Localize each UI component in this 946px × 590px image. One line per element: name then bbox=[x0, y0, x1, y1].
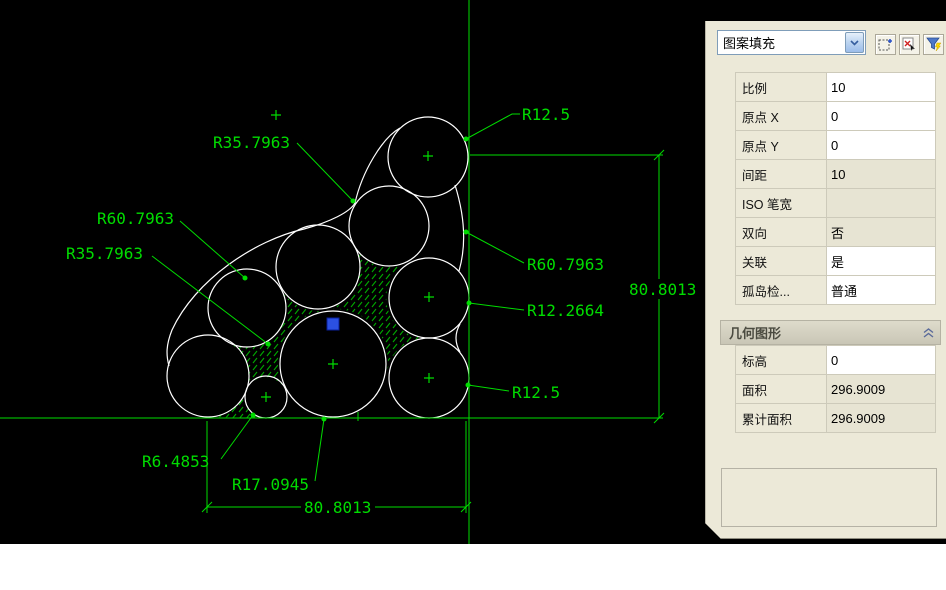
prop-value[interactable] bbox=[827, 189, 935, 217]
prop-value[interactable]: 0 bbox=[827, 346, 935, 374]
prop-label: 原点 X bbox=[736, 102, 827, 130]
prop-row: 累计面积 296.9009 bbox=[736, 404, 935, 433]
selection-grip[interactable] bbox=[327, 318, 339, 330]
geometry-section-header[interactable]: 几何图形 bbox=[720, 320, 941, 345]
prop-value[interactable]: 0 bbox=[827, 102, 935, 130]
prop-row: 间距 10 bbox=[736, 160, 935, 189]
bottom-background bbox=[0, 544, 946, 590]
circle[interactable] bbox=[276, 225, 360, 309]
prop-label: 标高 bbox=[736, 346, 827, 374]
hatch-entity[interactable] bbox=[208, 247, 429, 418]
prop-row: 比例 10 bbox=[736, 73, 935, 102]
palette-empty-panel bbox=[721, 468, 937, 527]
prop-row: 原点 X 0 bbox=[736, 102, 935, 131]
prop-label: 间距 bbox=[736, 160, 827, 188]
prop-row: 标高 0 bbox=[736, 346, 935, 375]
prop-row: ISO 笔宽 bbox=[736, 189, 935, 218]
select-objects-button[interactable] bbox=[899, 34, 920, 55]
application-window: R35.7963 R12.5 R60.7963 R35.7963 R60.796… bbox=[0, 0, 946, 590]
circle[interactable] bbox=[208, 269, 286, 347]
circle-entities[interactable] bbox=[167, 117, 469, 418]
radius-label: R35.7963 bbox=[213, 133, 290, 152]
prop-label: ISO 笔宽 bbox=[736, 189, 827, 217]
circle[interactable] bbox=[167, 335, 249, 417]
dropdown-arrow-icon[interactable] bbox=[845, 32, 864, 53]
prop-row: 关联 是 bbox=[736, 247, 935, 276]
radius-label: R60.7963 bbox=[97, 209, 174, 228]
prop-value[interactable]: 否 bbox=[827, 218, 935, 246]
object-type-dropdown[interactable]: 图案填充 bbox=[717, 30, 866, 55]
properties-palette: 图案填充 比例 bbox=[705, 21, 946, 539]
prop-label: 关联 bbox=[736, 247, 827, 275]
prop-value[interactable]: 0 bbox=[827, 131, 935, 159]
prop-label: 双向 bbox=[736, 218, 827, 246]
boundary-spline[interactable] bbox=[167, 128, 464, 366]
radius-label: R12.5 bbox=[522, 105, 570, 124]
select-objects-icon bbox=[902, 37, 917, 52]
prop-row: 原点 Y 0 bbox=[736, 131, 935, 160]
quick-select-button[interactable] bbox=[923, 34, 944, 55]
radius-label: R12.5 bbox=[512, 383, 560, 402]
quick-select-icon bbox=[926, 37, 942, 52]
radius-label: R12.2664 bbox=[527, 301, 604, 320]
prop-label: 累计面积 bbox=[736, 404, 827, 432]
prop-row: 面积 296.9009 bbox=[736, 375, 935, 404]
prop-row: 孤岛检... 普通 bbox=[736, 276, 935, 305]
radius-label: R35.7963 bbox=[66, 244, 143, 263]
prop-value[interactable]: 是 bbox=[827, 247, 935, 275]
dimension-text: 80.8013 bbox=[304, 498, 371, 517]
geometry-properties-grid: 标高 0 面积 296.9009 累计面积 296.9009 bbox=[735, 345, 936, 433]
radius-label: R6.4853 bbox=[142, 452, 209, 471]
prop-value[interactable]: 10 bbox=[827, 160, 935, 188]
circle[interactable] bbox=[349, 186, 429, 266]
prop-label: 原点 Y bbox=[736, 131, 827, 159]
prop-label: 比例 bbox=[736, 73, 827, 101]
prop-row: 双向 否 bbox=[736, 218, 935, 247]
pickadd-toggle-icon bbox=[878, 37, 893, 52]
object-type-value: 图案填充 bbox=[718, 33, 845, 52]
prop-label: 孤岛检... bbox=[736, 276, 827, 304]
radius-label: R17.0945 bbox=[232, 475, 309, 494]
geometry-section-title: 几何图形 bbox=[729, 323, 781, 342]
hatch-properties-grid: 比例 10 原点 X 0 原点 Y 0 间距 10 ISO 笔宽 双向 否 bbox=[735, 72, 936, 305]
radius-leaders bbox=[152, 114, 524, 481]
pickadd-toggle-button[interactable] bbox=[875, 34, 896, 55]
prop-value: 296.9009 bbox=[827, 375, 935, 403]
center-marks bbox=[261, 110, 434, 402]
dimension-text: 80.8013 bbox=[629, 280, 696, 299]
prop-label: 面积 bbox=[736, 375, 827, 403]
radius-label: R60.7963 bbox=[527, 255, 604, 274]
prop-value: 296.9009 bbox=[827, 404, 935, 432]
prop-value[interactable]: 10 bbox=[827, 73, 935, 101]
prop-value[interactable]: 普通 bbox=[827, 276, 935, 304]
collapse-chevron-icon[interactable] bbox=[923, 328, 934, 338]
